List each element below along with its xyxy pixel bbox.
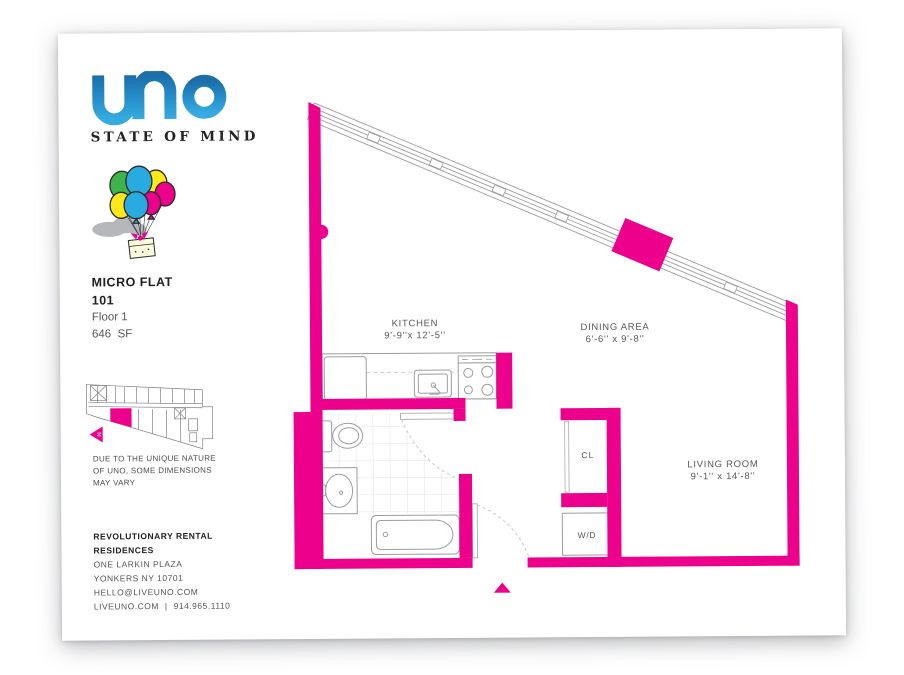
- logo-letter-u: [98, 75, 130, 119]
- floorplan-drawing: KITCHEN 9'-9''x 12'-5'' DINING AREA 6'-6…: [283, 80, 847, 640]
- unit-floor: Floor 1: [92, 309, 173, 327]
- wall-bath-step: [454, 409, 466, 421]
- kitchen-dims: 9'-9''x 12'-5'': [384, 330, 446, 341]
- north-arrow-icon: N: [90, 426, 104, 442]
- disclaimer-note: DUE TO THE UNIQUE NATURE OF UNO, SOME DI…: [93, 453, 216, 490]
- wall-left: [308, 102, 322, 414]
- north-label: N: [97, 432, 103, 436]
- window-column: [611, 218, 673, 271]
- window-wall: [307, 100, 797, 326]
- dining-dims: 6'-6'' x 9'-8'': [586, 334, 645, 345]
- contact-website: LIVEUNO.COM: [94, 601, 159, 611]
- washer-dryer-label: W/D: [578, 530, 597, 540]
- address-line2: YONKERS NY 10701: [94, 571, 231, 586]
- contact-phone: 914.965.1110: [174, 601, 231, 611]
- bathroom: [320, 413, 460, 555]
- unit-info-block: MICRO FLAT 101 Floor 1 646 SF: [92, 273, 174, 344]
- wall-closet-bottom: [561, 493, 607, 507]
- company-name-line2: RESIDENCES: [93, 543, 230, 558]
- dining-label: DINING AREA: [580, 322, 649, 333]
- disclaimer-line: MAY VARY: [93, 477, 216, 490]
- wall-kitchen-right: [496, 353, 512, 409]
- entry-marker-triangle: [494, 583, 511, 593]
- keyplan-outline: [86, 384, 212, 450]
- bathroom-door-leaf: [401, 413, 459, 419]
- wall-bottom-left: [295, 558, 473, 569]
- wall-kitchen-bath-divider: [310, 398, 465, 410]
- disclaimer-line: DUE TO THE UNIQUE NATURE: [93, 453, 216, 466]
- unit-type: MICRO FLAT: [92, 273, 173, 292]
- closet-label: CL: [581, 450, 594, 460]
- kitchen-label: KITCHEN: [392, 318, 439, 329]
- logo-letter-n: [138, 75, 170, 119]
- living-label: LIVING ROOM: [687, 459, 758, 470]
- balloons-cluster-icon: [110, 166, 175, 223]
- entry-door-leaf: [472, 504, 477, 558]
- walls: [291, 99, 799, 595]
- fridge-icon: [324, 357, 366, 400]
- balloons-illustration: [89, 161, 215, 287]
- contact-separator: |: [165, 601, 168, 611]
- wall-bath-right: [459, 474, 473, 558]
- logo-letter-o: [188, 81, 220, 113]
- wall-closet-right: [607, 408, 622, 567]
- living-dims: 9'-1'' x 14'-8'': [691, 471, 756, 482]
- wall-bottom-right: [528, 556, 800, 568]
- wall-left-lower: [294, 412, 324, 569]
- contact-email: HELLO@LIVEUNO.COM: [94, 585, 231, 600]
- entry-door: [472, 503, 528, 557]
- vanity-sink-icon: [320, 468, 357, 514]
- uno-logo: [90, 70, 240, 125]
- unit-number: 101: [92, 291, 173, 310]
- building-key-plan: N: [83, 377, 239, 458]
- kitchen-sink-icon: [414, 370, 451, 397]
- closet-sliding-door: [565, 421, 569, 492]
- entry-door-swing: [477, 504, 528, 556]
- brand-tagline: STATE OF MIND: [91, 128, 259, 145]
- floorplan-sheet: STATE OF MIND: [58, 28, 846, 640]
- kitchen-fixtures: [322, 353, 496, 400]
- unit-area: 646 SF: [92, 326, 173, 344]
- company-name-line1: REVOLUTIONARY RENTAL: [93, 529, 230, 544]
- disclaimer-line: OF UNO, SOME DIMENSIONS: [93, 465, 216, 478]
- contact-web-phone: LIVEUNO.COM|914.965.1110: [94, 599, 231, 614]
- address-line1: ONE LARKIN PLAZA: [94, 557, 231, 572]
- gift-box-icon: [128, 231, 156, 259]
- bathtub-icon: [371, 515, 459, 555]
- contact-block: REVOLUTIONARY RENTAL RESIDENCES ONE LARK…: [93, 529, 230, 614]
- screenshot-canvas: STATE OF MIND: [0, 0, 904, 675]
- wall-right: [786, 300, 800, 566]
- stove-icon: [458, 356, 496, 399]
- wall-column-bump: [314, 225, 328, 239]
